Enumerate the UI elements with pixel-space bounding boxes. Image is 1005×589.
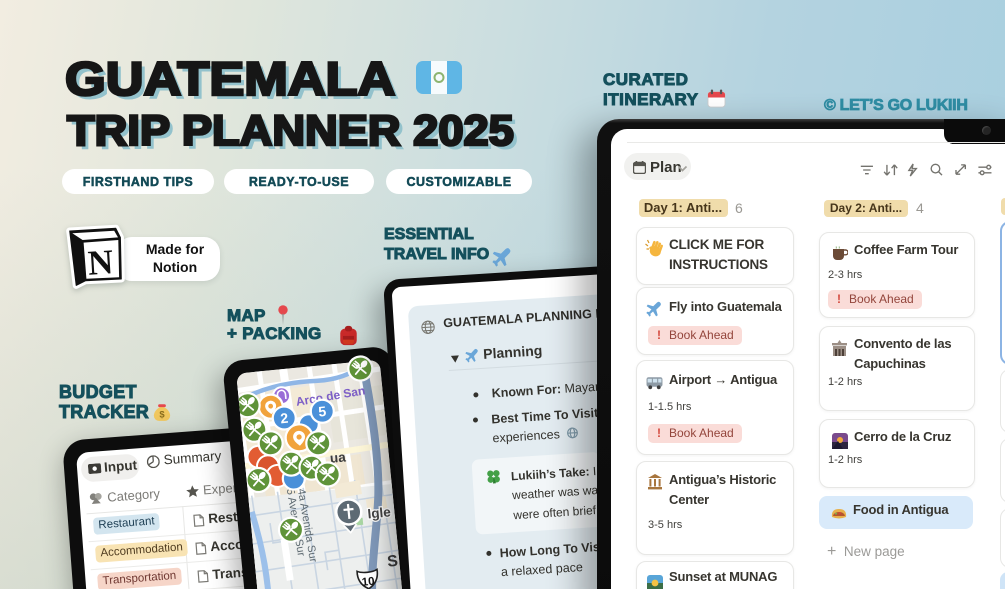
svg-text:Igle: Igle — [367, 504, 392, 521]
svg-text:S: S — [387, 553, 400, 571]
svg-text:N: N — [87, 242, 115, 282]
svg-text:$: $ — [159, 409, 165, 420]
svg-text:10: 10 — [361, 576, 375, 589]
